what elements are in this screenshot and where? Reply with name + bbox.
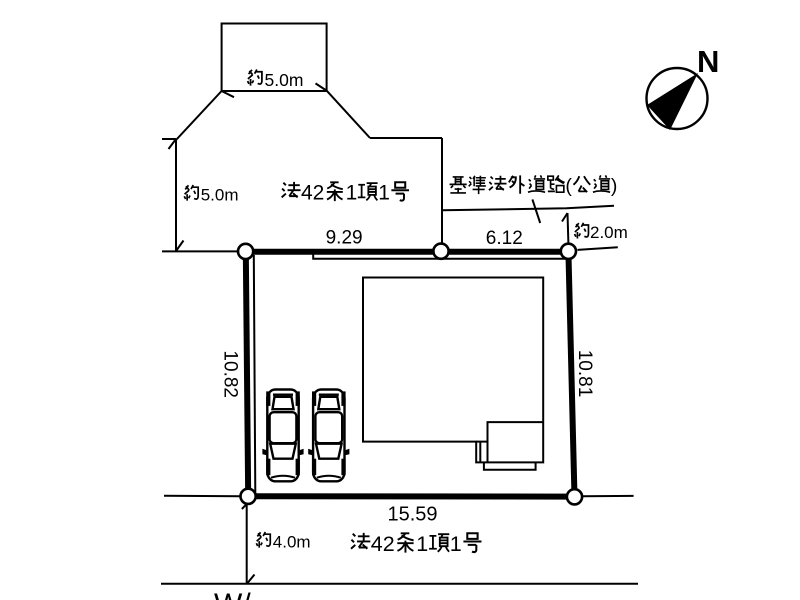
svg-text:): ) [611,175,618,197]
svg-text:1: 1 [416,532,428,556]
svg-text:1: 1 [450,532,462,556]
svg-text:42: 42 [371,532,395,556]
svg-text:W/: W/ [214,588,251,600]
svg-text:10.82: 10.82 [220,350,241,398]
svg-text:6.12: 6.12 [486,228,523,249]
svg-text:4.0m: 4.0m [273,532,311,551]
svg-text:5.0m: 5.0m [201,186,239,205]
svg-text:1: 1 [378,182,390,205]
svg-text:10.81: 10.81 [574,350,595,398]
svg-text:1: 1 [346,182,358,205]
svg-text:N: N [697,44,719,79]
svg-text:(: ( [565,175,572,197]
svg-text:15.59: 15.59 [388,504,438,526]
svg-text:9.29: 9.29 [326,228,363,249]
svg-text:5.0m: 5.0m [265,70,304,90]
svg-text:2.0m: 2.0m [590,223,628,242]
svg-text:42: 42 [301,182,324,205]
